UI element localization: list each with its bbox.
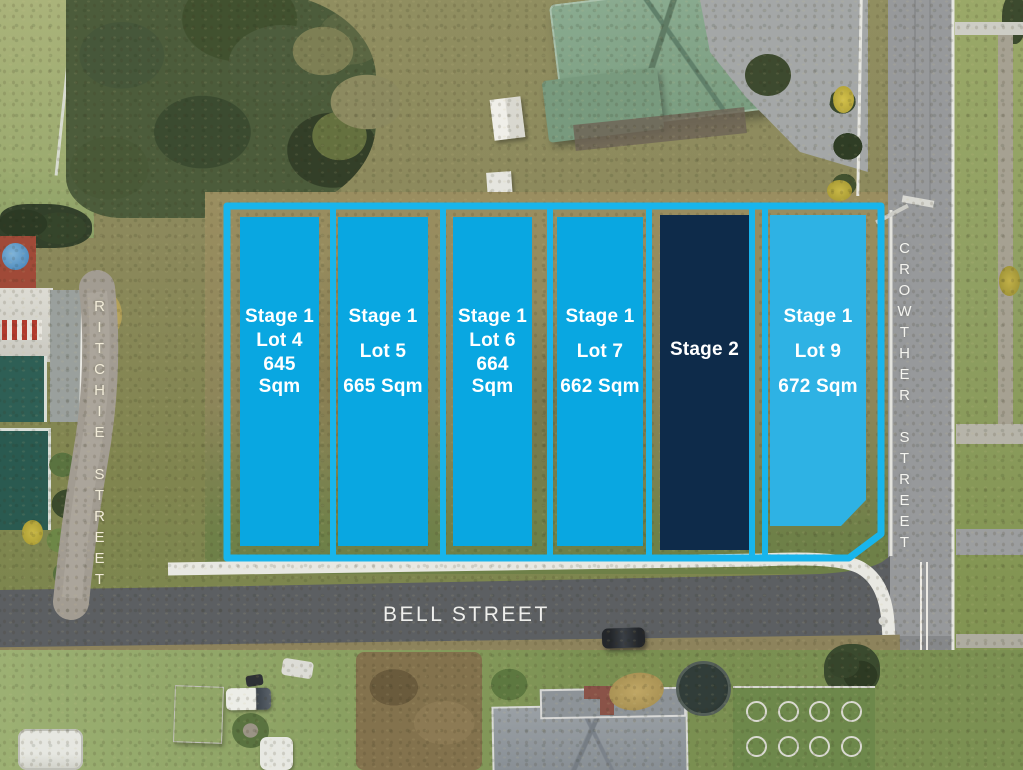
lot-area: 672 Sqm: [770, 376, 866, 398]
lot-number: Lot 7: [557, 341, 643, 363]
lot-number: Lot 4: [240, 330, 319, 352]
lot-number: Lot 9: [770, 341, 866, 363]
lot-6-label: Stage 1 Lot 6 664 Sqm: [453, 306, 532, 398]
lot-area: 645 Sqm: [240, 354, 319, 398]
stage-2-label: Stage 2: [660, 339, 749, 361]
lot-number: Lot 5: [338, 341, 428, 363]
stage-2-fill: [660, 215, 749, 550]
lot-9-label: Stage 1 Lot 9 672 Sqm: [770, 306, 866, 398]
lot-stage: Stage 2: [660, 339, 749, 361]
lot-area: 664 Sqm: [453, 354, 532, 398]
lot-stage: Stage 1: [557, 306, 643, 328]
lot-stage: Stage 1: [338, 306, 428, 328]
lot-4-label: Stage 1 Lot 4 645 Sqm: [240, 306, 319, 398]
crowther-street-label: CROWTHER STREET: [897, 240, 912, 555]
lot-area: 662 Sqm: [557, 376, 643, 398]
lot-stage: Stage 1: [240, 306, 319, 328]
lot-stage: Stage 1: [453, 306, 532, 328]
lot-number: Lot 6: [453, 330, 532, 352]
lot-5-label: Stage 1 Lot 5 665 Sqm: [338, 306, 428, 398]
lot-stage: Stage 1: [770, 306, 866, 328]
bell-street-label: BELL STREET: [383, 603, 550, 627]
lot-area: 665 Sqm: [338, 376, 428, 398]
ritchie-street-label: RITCHIE STREET: [92, 298, 107, 592]
aerial-photo: Stage 1 Lot 4 645 Sqm Stage 1 Lot 5 665 …: [0, 0, 1023, 770]
lot-7-label: Stage 1 Lot 7 662 Sqm: [557, 306, 643, 398]
